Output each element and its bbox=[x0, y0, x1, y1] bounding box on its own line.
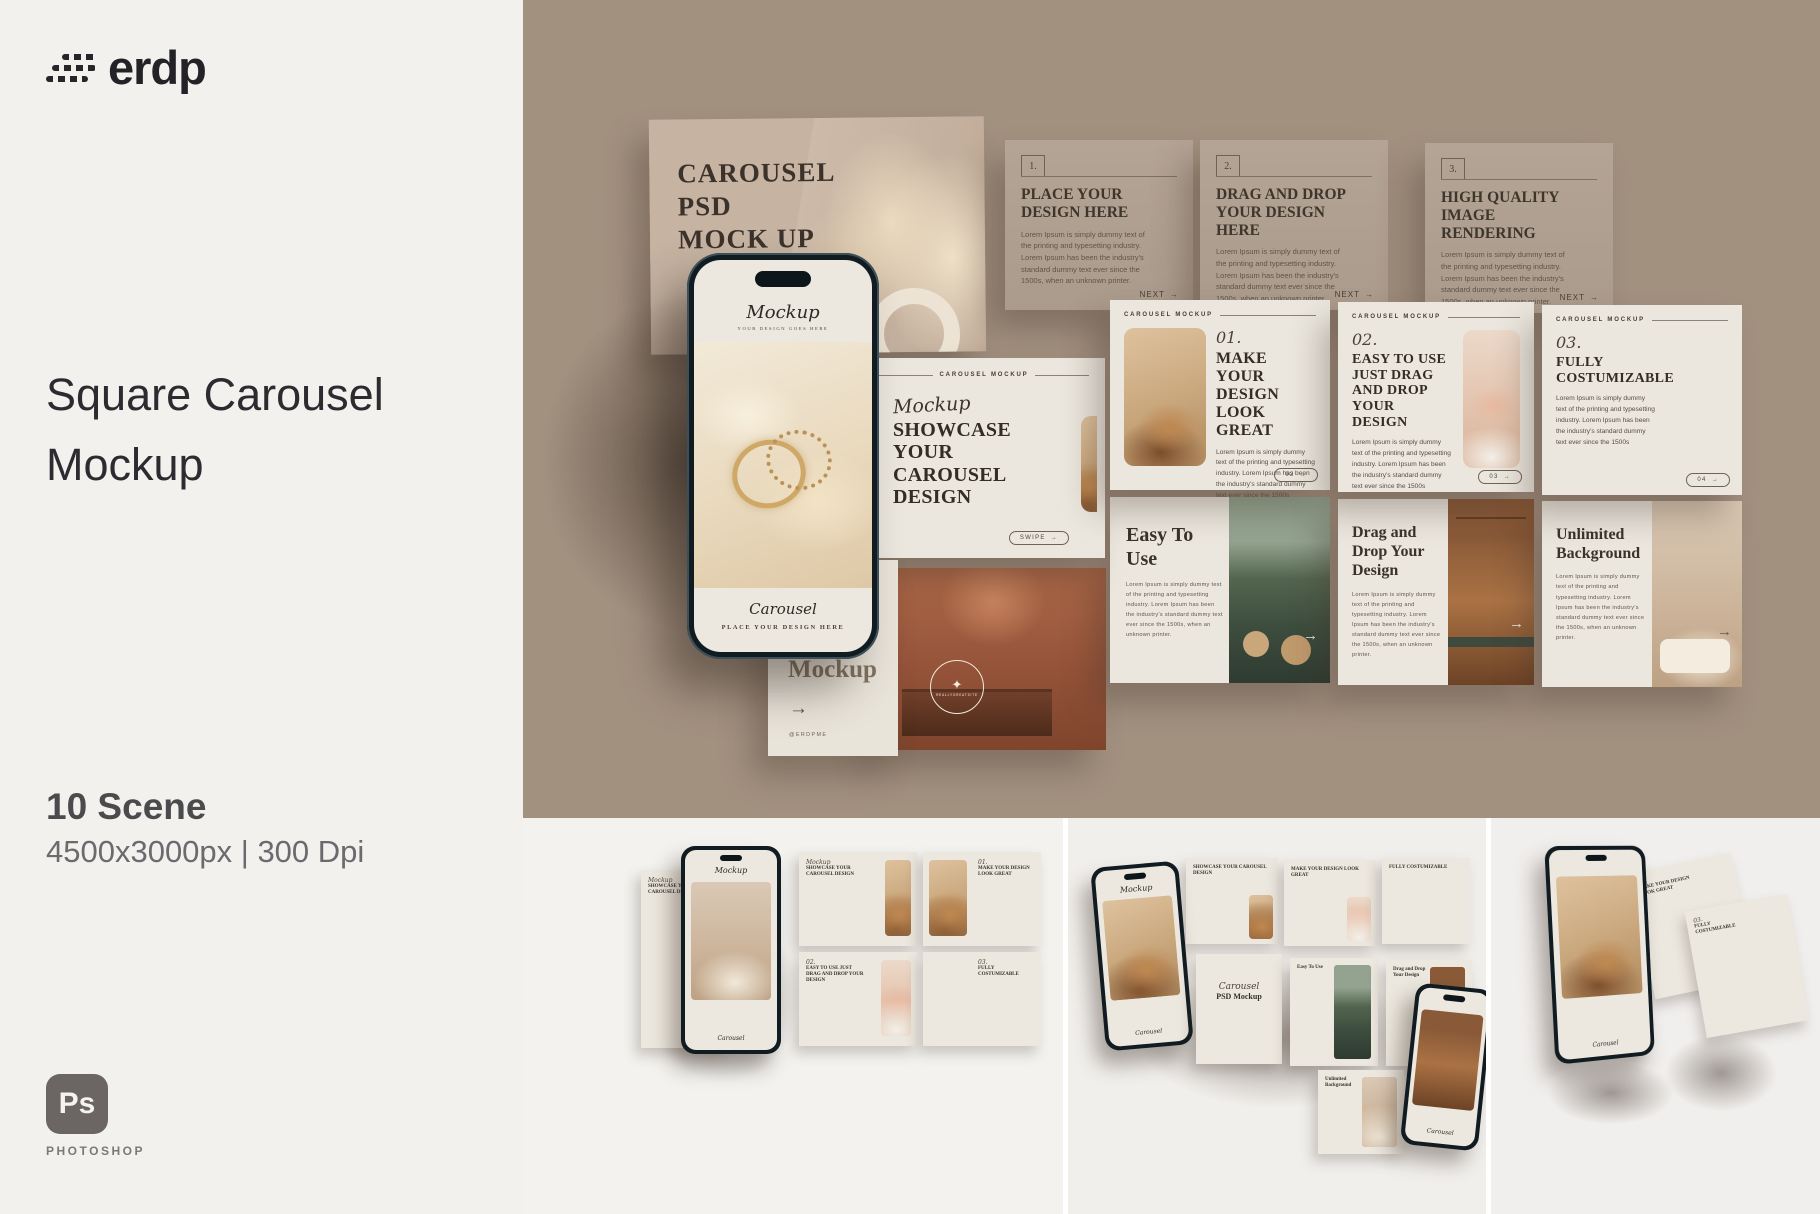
scene-thumbnails: Mockup SHOWCASE YOUR CAROUSEL DESIGN Moc… bbox=[523, 818, 1820, 1214]
step-number: 3. bbox=[1441, 158, 1465, 179]
step-head: 3. bbox=[1441, 157, 1597, 180]
phone-caption-script: Carousel bbox=[694, 600, 872, 618]
outro-title: Mockup bbox=[788, 656, 877, 684]
slide-header: CAROUSEL MOCKUP bbox=[879, 372, 1089, 378]
slide-body: Lorem Ipsum is simply dummy text of the … bbox=[1352, 438, 1453, 492]
step-card-2: 2. DRAG AND DROP YOUR DESIGN HERE Lorem … bbox=[1200, 140, 1388, 310]
step-title: DRAG AND DROP YOUR DESIGN HERE bbox=[1216, 186, 1366, 239]
left-info-panel: erdp Square Carousel Mockup 10 Scene 450… bbox=[0, 0, 523, 1214]
next-button: NEXT → bbox=[1335, 290, 1374, 299]
step-title: HIGH QUALITY IMAGE RENDERING bbox=[1441, 189, 1591, 242]
slide-title: FULLY COSTUMIZABLE bbox=[1556, 355, 1656, 386]
slide-number: 01. bbox=[1216, 328, 1316, 347]
stool bbox=[1243, 631, 1269, 657]
slide-header: CAROUSEL MOCKUP bbox=[1352, 314, 1520, 320]
counter-line bbox=[1448, 637, 1534, 647]
step-title: PLACE YOUR DESIGN HERE bbox=[1021, 186, 1171, 222]
mini-slide: 01. MAKE YOUR DESIGN LOOK GREAT bbox=[923, 852, 1041, 946]
swipe-pill: SWIPE → bbox=[1009, 531, 1069, 545]
slide-01: CAROUSEL MOCKUP 01. MAKE YOUR DESIGN LOO… bbox=[1110, 300, 1330, 490]
phone-mockup: Mockup YOUR DESIGN GOES HERE Carousel PL… bbox=[687, 253, 879, 659]
mini-slide: FULLY COSTUMIZABLE bbox=[1382, 858, 1470, 944]
kitchen-photo: → bbox=[1448, 499, 1534, 685]
step-card-3: 3. HIGH QUALITY IMAGE RENDERING Lorem Ip… bbox=[1425, 143, 1613, 313]
slide-number: 03. bbox=[1556, 333, 1656, 352]
step-body: Lorem Ipsum is simply dummy text of the … bbox=[1441, 249, 1576, 307]
next-button: NEXT → bbox=[1140, 290, 1179, 299]
erdp-dashes-icon bbox=[46, 48, 96, 88]
slide-title: Easy To Use bbox=[1126, 523, 1196, 571]
thumbnail-scene-2: SHOWCASE YOUR CAROUSEL DESIGN MAKE YOUR … bbox=[1068, 818, 1486, 1214]
mini-slide: MAKE YOUR DESIGN LOOK GREAT bbox=[1284, 860, 1376, 946]
slide-title: MAKE YOUR DESIGN LOOK GREAT bbox=[1216, 350, 1316, 440]
slide-title: Drag and Drop Your Design bbox=[1352, 523, 1432, 581]
step-number: 1. bbox=[1021, 155, 1045, 176]
slide-showcase: CAROUSEL MOCKUP Mockup SHOWCASE YOUR CAR… bbox=[863, 358, 1105, 558]
bedroom-photo: → bbox=[1652, 501, 1742, 687]
arrow-right-icon: → bbox=[1712, 477, 1719, 483]
next-button: NEXT → bbox=[1560, 293, 1599, 302]
mini-slide: SHOWCASE YOUR CAROUSEL DESIGN bbox=[1186, 858, 1278, 944]
mini-slide: Easy To Use bbox=[1290, 958, 1378, 1066]
photoshop-label: PHOTOSHOP bbox=[46, 1144, 145, 1158]
slide-number: 02. bbox=[1352, 330, 1453, 349]
arrow-right-icon: → bbox=[1717, 624, 1732, 639]
rings-photo bbox=[694, 342, 872, 588]
phone-subtitle: YOUR DESIGN GOES HERE bbox=[694, 326, 872, 331]
slide-body: Lorem Ipsum is simply dummy text of the … bbox=[1556, 394, 1656, 448]
step-number: 2. bbox=[1216, 155, 1240, 176]
step-head: 1. bbox=[1021, 154, 1177, 177]
mini-phone: Carousel bbox=[1544, 846, 1655, 1065]
dynamic-island-icon bbox=[1585, 855, 1607, 861]
brand-name: erdp bbox=[108, 44, 206, 91]
easy-slide: Easy To Use Lorem Ipsum is simply dummy … bbox=[1110, 497, 1330, 683]
slide-pill: 04 → bbox=[1686, 473, 1730, 487]
arrow-right-icon: → bbox=[1051, 535, 1058, 541]
star-icon: ✦ bbox=[952, 678, 963, 691]
mini-slide: Mockup SHOWCASE YOUR CAROUSEL DESIGN bbox=[799, 852, 917, 946]
slide-body: Lorem Ipsum is simply dummy text of the … bbox=[1352, 590, 1442, 660]
step-card-1: 1. PLACE YOUR DESIGN HERE Lorem Ipsum is… bbox=[1005, 140, 1193, 310]
bed bbox=[1660, 639, 1730, 673]
slide-02: CAROUSEL MOCKUP 02. EASY TO USE JUST DRA… bbox=[1338, 302, 1534, 492]
step-head: 2. bbox=[1216, 154, 1372, 177]
arrow-right-icon: → bbox=[1300, 472, 1307, 478]
slide-header: CAROUSEL MOCKUP bbox=[1556, 317, 1728, 323]
step-body: Lorem Ipsum is simply dummy text of the … bbox=[1216, 246, 1351, 304]
next-slide-photo-sliver bbox=[1081, 416, 1097, 512]
outro-handle: @ERDPME bbox=[789, 732, 827, 738]
mockup-scene: CAROUSEL PSD MOCK UP 1. PLACE YOUR DESIG… bbox=[523, 0, 1820, 818]
hallway-slide: ✦ REALLYGREATSITE bbox=[880, 568, 1106, 750]
mini-slide: 03. FULLY COSTUMIZABLE bbox=[923, 952, 1041, 1046]
thumbnail-scene-3: 01. MAKE YOUR DESIGN LOOK GREAT 03. FULL… bbox=[1491, 818, 1820, 1214]
slide-pill: 03 → bbox=[1478, 470, 1522, 484]
slide-body: Lorem Ipsum is simply dummy text of the … bbox=[1556, 572, 1646, 642]
arrow-right-icon: → bbox=[1365, 290, 1374, 299]
brand-logo: erdp bbox=[46, 44, 206, 91]
dynamic-island-icon bbox=[1443, 994, 1466, 1002]
slide-pill: 02 → bbox=[1274, 468, 1318, 482]
page-title: Square Carousel Mockup bbox=[46, 360, 384, 500]
rose-photo bbox=[1666, 333, 1728, 471]
slide-body: Lorem Ipsum is simply dummy text of the … bbox=[1126, 580, 1223, 640]
dragdrop-slide: Drag and Drop Your Design Lorem Ipsum is… bbox=[1338, 499, 1534, 685]
counter-photo: → bbox=[1229, 497, 1330, 683]
mini-slide: 02. EASY TO USE JUST DRAG AND DROP YOUR … bbox=[799, 952, 917, 1046]
thumbnail-scene-1: Mockup SHOWCASE YOUR CAROUSEL DESIGN Moc… bbox=[523, 818, 1063, 1214]
slide-title: SHOWCASE YOUR CAROUSEL DESIGN bbox=[893, 419, 1003, 509]
dynamic-island-icon bbox=[1124, 872, 1146, 880]
mini-phone: Mockup Carousel bbox=[1090, 861, 1194, 1052]
page-title-line2: Mockup bbox=[46, 430, 384, 500]
mini-slide: 03. FULLY COSTUMIZABLE bbox=[1685, 894, 1810, 1038]
tea-photo bbox=[1124, 328, 1206, 466]
shelf-line bbox=[1456, 517, 1526, 519]
necklace-photo bbox=[1463, 330, 1520, 468]
arrow-right-icon: → bbox=[1509, 616, 1524, 631]
page-title-line1: Square Carousel bbox=[46, 360, 384, 430]
cover-title: CAROUSEL PSD MOCK UP bbox=[677, 156, 828, 256]
mini-phone: Mockup Carousel bbox=[681, 846, 781, 1054]
slide-header: CAROUSEL MOCKUP bbox=[1124, 312, 1316, 318]
brand-badge: ✦ REALLYGREATSITE bbox=[930, 660, 984, 714]
dynamic-island-icon bbox=[720, 855, 742, 861]
phone-caption: PLACE YOUR DESIGN HERE bbox=[694, 624, 872, 631]
phone-script-title: Mockup bbox=[694, 302, 872, 323]
arrow-right-icon: → bbox=[1303, 628, 1318, 643]
arrow-right-icon: → bbox=[1590, 293, 1599, 302]
mini-rings-photo bbox=[691, 882, 771, 1000]
scene-count: 10 Scene bbox=[46, 786, 206, 828]
slide-title: Unlimited Background bbox=[1556, 525, 1640, 563]
arrow-right-icon: → bbox=[1170, 290, 1179, 299]
specs-text: 4500x3000px | 300 Dpi bbox=[46, 834, 364, 870]
phone-screen: Mockup YOUR DESIGN GOES HERE Carousel PL… bbox=[694, 260, 872, 652]
arrow-right-icon: → bbox=[789, 698, 808, 720]
step-body: Lorem Ipsum is simply dummy text of the … bbox=[1021, 229, 1156, 287]
promo-poster: erdp Square Carousel Mockup 10 Scene 450… bbox=[0, 0, 1820, 1214]
photoshop-icon: Ps bbox=[46, 1074, 108, 1134]
background-slide: Unlimited Background Lorem Ipsum is simp… bbox=[1542, 501, 1742, 687]
badge-text: REALLYGREATSITE bbox=[936, 693, 978, 697]
arrow-right-icon: → bbox=[1504, 474, 1511, 480]
mini-slide: Unlimited Background bbox=[1318, 1070, 1404, 1154]
slide-title: EASY TO USE JUST DRAG AND DROP YOUR DESI… bbox=[1352, 352, 1453, 430]
mini-title-card: Carousel PSD Mockup bbox=[1196, 954, 1282, 1064]
slide-03: CAROUSEL MOCKUP 03. FULLY COSTUMIZABLE L… bbox=[1542, 305, 1742, 495]
dynamic-island-icon bbox=[755, 271, 811, 287]
slide-script: Mockup bbox=[892, 392, 983, 419]
